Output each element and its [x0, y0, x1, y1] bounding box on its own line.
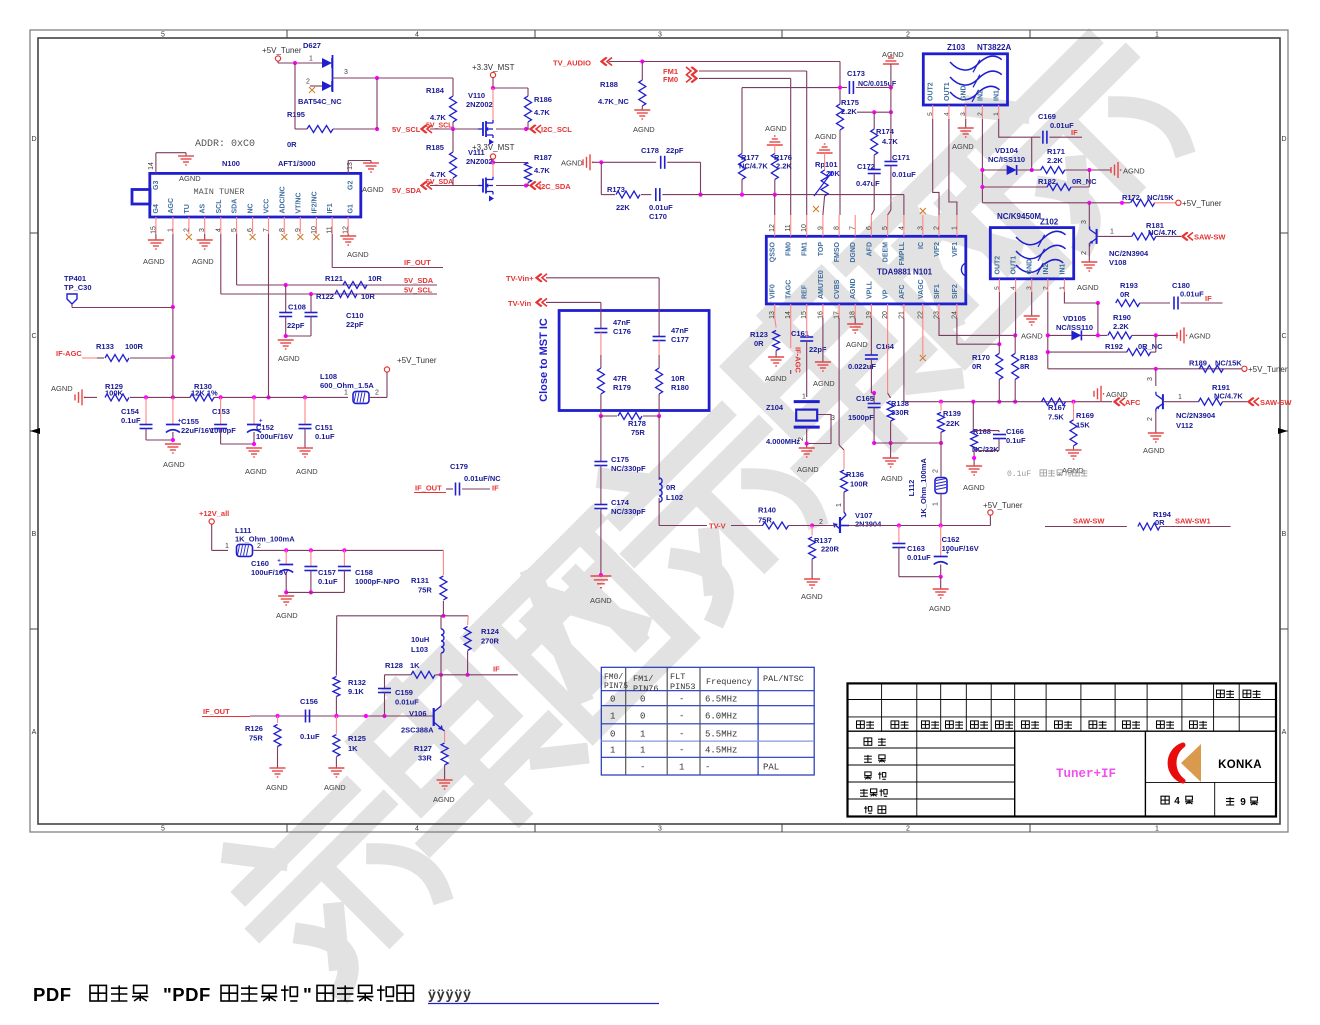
- svg-text:0R: 0R: [287, 140, 297, 149]
- svg-text:AGND: AGND: [813, 379, 835, 388]
- svg-text:R179: R179: [613, 383, 631, 392]
- svg-text:TV-Vin: TV-Vin: [508, 299, 532, 308]
- svg-text:Frequency: Frequency: [706, 677, 752, 687]
- svg-text:+: +: [277, 559, 281, 565]
- svg-text:5V_SDA: 5V_SDA: [392, 186, 422, 195]
- svg-text:R171: R171: [1047, 147, 1065, 156]
- svg-text:FMSO: FMSO: [834, 241, 841, 262]
- svg-text:R122: R122: [316, 292, 334, 301]
- svg-text:TAGC: TAGC: [786, 280, 793, 299]
- svg-text:R182: R182: [1038, 177, 1056, 186]
- svg-text:0: 0: [640, 712, 645, 722]
- svg-text:KONKA: KONKA: [1218, 759, 1262, 771]
- svg-text:C174: C174: [611, 498, 630, 507]
- svg-text:AGND: AGND: [846, 340, 868, 349]
- svg-text:VT/NC: VT/NC: [295, 193, 302, 214]
- svg-text:1: 1: [610, 746, 615, 756]
- svg-text:Close to MST IC: Close to MST IC: [538, 318, 550, 402]
- svg-text:TP_C30: TP_C30: [64, 283, 92, 292]
- svg-text:3: 3: [1147, 377, 1154, 381]
- svg-text:1: 1: [836, 503, 843, 507]
- svg-text:G2: G2: [348, 181, 355, 190]
- svg-text:IF_OUT: IF_OUT: [203, 707, 230, 716]
- svg-text:1: 1: [640, 730, 645, 740]
- svg-text:NC/2N3904: NC/2N3904: [1109, 249, 1149, 258]
- svg-text:IN1: IN1: [994, 90, 1001, 101]
- svg-text:3: 3: [658, 826, 662, 833]
- svg-text:AGND: AGND: [561, 159, 583, 168]
- svg-text:C159: C159: [395, 688, 413, 697]
- svg-text:75R: 75R: [631, 428, 645, 437]
- svg-text:C170: C170: [649, 212, 667, 221]
- svg-text:R192: R192: [1105, 342, 1123, 351]
- svg-text:IC: IC: [918, 242, 925, 249]
- svg-text:FM1: FM1: [802, 242, 809, 256]
- svg-text:8R: 8R: [1020, 362, 1030, 371]
- svg-text:NC/2N3904: NC/2N3904: [1176, 411, 1216, 420]
- svg-text:1: 1: [309, 56, 313, 63]
- svg-text:3: 3: [831, 415, 835, 422]
- svg-text:AGND: AGND: [296, 467, 318, 476]
- svg-text:IN2: IN2: [977, 90, 984, 101]
- svg-text:C163: C163: [907, 544, 925, 553]
- svg-text:FMPLL: FMPLL: [899, 241, 906, 265]
- svg-text:1: 1: [1110, 229, 1114, 236]
- svg-text:C155: C155: [181, 417, 199, 426]
- svg-text:AGND: AGND: [882, 50, 904, 59]
- svg-text:I2C_SCL: I2C_SCL: [541, 125, 572, 134]
- svg-text:SAW-SW: SAW-SW: [1194, 233, 1226, 242]
- svg-text:IF: IF: [493, 665, 500, 674]
- svg-text:C175: C175: [611, 455, 629, 464]
- svg-text:R127: R127: [414, 744, 432, 753]
- svg-text:2: 2: [257, 543, 261, 550]
- svg-text:10uH: 10uH: [411, 635, 429, 644]
- svg-text:": ": [303, 984, 312, 1005]
- svg-text:R195: R195: [287, 110, 305, 119]
- svg-text:1500pF: 1500pF: [848, 413, 874, 422]
- svg-text:IF-AGC: IF-AGC: [794, 347, 803, 373]
- svg-text:-: -: [705, 763, 710, 773]
- svg-text:ADDR: 0xC0: ADDR: 0xC0: [195, 139, 255, 150]
- svg-text:AGND: AGND: [765, 124, 787, 133]
- svg-text:VP: VP: [883, 289, 890, 299]
- svg-text:1: 1: [1178, 394, 1182, 401]
- svg-text:22pF: 22pF: [346, 320, 364, 329]
- svg-text:C108: C108: [288, 303, 306, 312]
- svg-text:AGND: AGND: [347, 250, 369, 259]
- svg-text:L103: L103: [411, 645, 428, 654]
- svg-text:3: 3: [1081, 220, 1088, 224]
- svg-text:IF_OUT: IF_OUT: [415, 484, 442, 493]
- svg-text:10R: 10R: [671, 374, 685, 383]
- svg-text:Z103: Z103: [947, 43, 966, 52]
- svg-text:BAT54C_NC: BAT54C_NC: [298, 97, 342, 106]
- svg-text:SAW-SW: SAW-SW: [1073, 517, 1105, 526]
- svg-text:ÿÿÿÿÿ: ÿÿÿÿÿ: [428, 986, 472, 1002]
- svg-text:2: 2: [375, 390, 379, 397]
- svg-text:V106: V106: [409, 709, 427, 718]
- svg-text:4.7K_NC: 4.7K_NC: [598, 97, 629, 106]
- svg-text:0.01uF: 0.01uF: [1180, 290, 1204, 299]
- svg-text:TDA9881: TDA9881: [877, 268, 912, 277]
- svg-text:NC/330pF: NC/330pF: [611, 464, 646, 473]
- svg-text:VIF0: VIF0: [770, 284, 777, 299]
- svg-text:L102: L102: [666, 493, 683, 502]
- svg-text:9: 9: [1240, 797, 1246, 808]
- svg-text:1K_Ohm_100mA: 1K_Ohm_100mA: [919, 458, 928, 518]
- svg-text:AGND: AGND: [245, 467, 267, 476]
- svg-text:2.2K: 2.2K: [1047, 156, 1063, 165]
- svg-text:VCC: VCC: [264, 199, 271, 214]
- svg-text:R140: R140: [758, 506, 776, 515]
- svg-text:IF2/NC: IF2/NC: [311, 191, 318, 213]
- svg-text:NC/ISS110: NC/ISS110: [988, 155, 1025, 164]
- svg-text:R193: R193: [1120, 281, 1138, 290]
- svg-text:R183: R183: [1020, 353, 1038, 362]
- svg-text:DGND: DGND: [850, 242, 857, 263]
- svg-text:C151: C151: [315, 423, 333, 432]
- svg-text:5V_SCL: 5V_SCL: [392, 125, 421, 134]
- svg-text:0R_NC: 0R_NC: [1072, 177, 1097, 186]
- svg-text:V110: V110: [468, 91, 485, 100]
- svg-text:0R: 0R: [1120, 290, 1130, 299]
- svg-text:R188: R188: [600, 80, 618, 89]
- svg-text:R189: R189: [1189, 359, 1207, 368]
- svg-text:B: B: [32, 531, 37, 538]
- svg-text:220R: 220R: [821, 545, 840, 554]
- svg-text:AGND: AGND: [797, 465, 819, 474]
- svg-text:SAW-SW1: SAW-SW1: [1175, 517, 1211, 526]
- svg-text:22pF: 22pF: [809, 345, 827, 354]
- svg-text:AGND: AGND: [278, 354, 300, 363]
- svg-text:REF: REF: [802, 284, 809, 299]
- svg-text:5V_SDA: 5V_SDA: [404, 276, 434, 285]
- svg-text:-: -: [679, 746, 684, 756]
- svg-text:AGND: AGND: [929, 604, 951, 613]
- svg-text:C173: C173: [847, 69, 865, 78]
- svg-text:33R: 33R: [418, 754, 432, 763]
- svg-text:0R_NC: 0R_NC: [1138, 342, 1163, 351]
- svg-text:AGND: AGND: [1123, 167, 1145, 176]
- svg-text:PIN75: PIN75: [604, 682, 628, 691]
- svg-text:C179: C179: [450, 462, 468, 471]
- svg-text:+5V_Tuner: +5V_Tuner: [262, 46, 302, 55]
- svg-text:22pF: 22pF: [287, 321, 305, 330]
- svg-text:AGND: AGND: [433, 795, 455, 804]
- svg-text:0.47uF: 0.47uF: [856, 179, 880, 188]
- svg-text:AFD: AFD: [866, 242, 873, 256]
- svg-text:0: 0: [610, 695, 615, 705]
- svg-text:4: 4: [1174, 796, 1180, 807]
- svg-text:TP401: TP401: [64, 274, 86, 283]
- svg-text:VIF2: VIF2: [934, 242, 941, 257]
- svg-text:+12V_all: +12V_all: [199, 509, 229, 518]
- svg-text:1K: 1K: [348, 744, 358, 753]
- svg-text:NC/330pF: NC/330pF: [611, 507, 646, 516]
- svg-text:NC/4.7K: NC/4.7K: [739, 162, 768, 171]
- svg-text:4.7K: 4.7K: [430, 170, 446, 179]
- svg-text:AGND: AGND: [590, 596, 612, 605]
- svg-text:OUT2: OUT2: [928, 82, 935, 101]
- svg-text:C158: C158: [355, 568, 373, 577]
- svg-text:PIN76: PIN76: [633, 684, 659, 694]
- svg-text:FM0: FM0: [786, 242, 793, 256]
- svg-text:NC/K9450M: NC/K9450M: [997, 212, 1041, 221]
- svg-text:15K: 15K: [1076, 421, 1090, 430]
- svg-text:75R: 75R: [418, 586, 432, 595]
- svg-text:R131: R131: [411, 576, 429, 585]
- svg-text:CVBS: CVBS: [834, 279, 841, 299]
- svg-text:1: 1: [610, 712, 615, 722]
- svg-text:0.01uF: 0.01uF: [395, 698, 419, 707]
- svg-text:R139: R139: [943, 409, 961, 418]
- svg-text:VD105: VD105: [1063, 314, 1086, 323]
- svg-text:SIF1: SIF1: [934, 284, 941, 299]
- svg-text:NT3822A: NT3822A: [977, 43, 1011, 52]
- svg-text:100R: 100R: [125, 342, 144, 351]
- svg-text:R178: R178: [628, 419, 646, 428]
- svg-text:VD104: VD104: [995, 146, 1019, 155]
- svg-text:NC: NC: [248, 203, 255, 213]
- svg-text:C169: C169: [1038, 112, 1056, 121]
- svg-text:R190: R190: [1113, 313, 1131, 322]
- svg-text:Rp101: Rp101: [815, 160, 838, 169]
- svg-text:1000pF: 1000pF: [210, 426, 236, 435]
- svg-text:FM0/: FM0/: [604, 673, 623, 682]
- svg-text:0.1uF: 0.1uF: [315, 432, 335, 441]
- svg-text:IN2: IN2: [1043, 264, 1050, 275]
- svg-text:5: 5: [161, 826, 165, 833]
- svg-text:+5V_Tuner: +5V_Tuner: [983, 501, 1023, 510]
- svg-text:V108: V108: [1109, 258, 1127, 267]
- svg-text:DEEM: DEEM: [883, 242, 890, 262]
- svg-text:AGND: AGND: [163, 460, 185, 469]
- svg-text:7.5K: 7.5K: [1048, 413, 1064, 422]
- svg-text:I2C_SDA: I2C_SDA: [539, 182, 571, 191]
- svg-text:0.1uF: 0.1uF: [300, 732, 320, 741]
- svg-text:QSSO: QSSO: [770, 241, 777, 262]
- svg-text:R173: R173: [607, 185, 625, 194]
- svg-text:IN1: IN1: [1059, 264, 1066, 275]
- svg-text:AGND: AGND: [850, 278, 857, 299]
- svg-text:75R: 75R: [249, 734, 263, 743]
- svg-text:AGC: AGC: [168, 198, 175, 214]
- svg-text:D: D: [31, 136, 36, 143]
- svg-text:R174: R174: [876, 127, 895, 136]
- svg-text:PAL/NTSC: PAL/NTSC: [763, 674, 804, 684]
- svg-text:D: D: [1281, 136, 1286, 143]
- svg-text:AGND: AGND: [324, 783, 346, 792]
- svg-text:0R: 0R: [754, 339, 764, 348]
- svg-text:AGND: AGND: [1189, 332, 1211, 341]
- svg-text:2: 2: [933, 469, 940, 473]
- svg-text:-: -: [679, 695, 684, 705]
- svg-text:1: 1: [679, 763, 684, 773]
- svg-text:A: A: [32, 729, 37, 736]
- svg-text:100R: 100R: [850, 480, 869, 489]
- svg-text:-: -: [679, 712, 684, 722]
- svg-text:NC/15K: NC/15K: [1147, 193, 1174, 202]
- svg-text:9.1K: 9.1K: [348, 687, 364, 696]
- svg-text:C171: C171: [892, 153, 910, 162]
- svg-text:FLT: FLT: [670, 672, 685, 682]
- svg-text:TV_AUDIO: TV_AUDIO: [553, 59, 591, 68]
- svg-text:2SC388A: 2SC388A: [401, 726, 434, 735]
- svg-text:C110: C110: [346, 311, 364, 320]
- svg-text:C: C: [31, 333, 36, 340]
- svg-text:5.5MHz: 5.5MHz: [705, 730, 737, 740]
- svg-text:AGND: AGND: [765, 374, 787, 383]
- svg-text:AGND: AGND: [1077, 283, 1099, 292]
- svg-text:NC/15K: NC/15K: [1215, 359, 1242, 368]
- svg-text:PDF: PDF: [33, 984, 72, 1005]
- svg-text:+5V_Tuner: +5V_Tuner: [1182, 199, 1222, 208]
- svg-text:1: 1: [802, 394, 806, 401]
- svg-text:4.7K: 4.7K: [882, 137, 898, 146]
- svg-text:2NZ002: 2NZ002: [466, 157, 493, 166]
- svg-text:AGND: AGND: [1021, 332, 1043, 341]
- svg-text:PIN53: PIN53: [670, 682, 696, 692]
- svg-text:22pF: 22pF: [666, 146, 684, 155]
- svg-text:AGND: AGND: [881, 474, 903, 483]
- svg-text:AGND: AGND: [276, 611, 298, 620]
- svg-text:3: 3: [344, 69, 348, 76]
- svg-text:L112: L112: [907, 480, 916, 497]
- svg-text:2: 2: [906, 32, 910, 39]
- svg-text:G4: G4: [153, 204, 160, 213]
- svg-text:R172: R172: [1122, 193, 1140, 202]
- svg-text:+5V_Tuner: +5V_Tuner: [397, 356, 437, 365]
- svg-text:270R: 270R: [481, 637, 500, 646]
- svg-text:AS: AS: [200, 203, 207, 213]
- svg-text:4.7K: 4.7K: [534, 166, 550, 175]
- svg-text:N101: N101: [913, 268, 933, 277]
- svg-text:0.1uF: 0.1uF: [318, 577, 338, 586]
- svg-text:R186: R186: [534, 95, 552, 104]
- svg-text:+3.3V_MST: +3.3V_MST: [472, 63, 515, 72]
- svg-text:47R: 47R: [613, 374, 627, 383]
- svg-text:R124: R124: [481, 627, 500, 636]
- svg-text:IF-AGC: IF-AGC: [56, 349, 82, 358]
- svg-text:A: A: [1282, 729, 1287, 736]
- svg-text:AGND: AGND: [633, 125, 655, 134]
- svg-text:47nF: 47nF: [613, 318, 631, 327]
- svg-text:AFT1/3000: AFT1/3000: [278, 159, 316, 168]
- svg-text:Tuner+IF: Tuner+IF: [1056, 767, 1116, 781]
- svg-text:C154: C154: [121, 407, 140, 416]
- svg-text:0: 0: [640, 695, 645, 705]
- svg-text:14: 14: [148, 162, 155, 170]
- svg-text:R175: R175: [841, 98, 859, 107]
- svg-text:R132: R132: [348, 678, 366, 687]
- svg-text:NC/4.7K: NC/4.7K: [1148, 228, 1177, 237]
- svg-text:AGND: AGND: [1143, 446, 1165, 455]
- svg-text:2: 2: [1147, 417, 1154, 421]
- svg-text:1: 1: [1155, 32, 1159, 39]
- svg-text:SCL: SCL: [216, 199, 223, 214]
- svg-text:0R: 0R: [666, 483, 676, 492]
- svg-text:C156: C156: [300, 697, 318, 706]
- svg-text:GND: GND: [1027, 259, 1034, 275]
- svg-text:-: -: [679, 730, 684, 740]
- svg-text:1: 1: [640, 746, 645, 756]
- svg-text:2.2K: 2.2K: [1113, 322, 1129, 331]
- svg-text:FM0: FM0: [663, 75, 678, 84]
- svg-text:0.01uF: 0.01uF: [649, 203, 673, 212]
- svg-text:0.1uF: 0.1uF: [1006, 436, 1026, 445]
- svg-text:C177: C177: [671, 335, 689, 344]
- svg-text:R125: R125: [348, 734, 366, 743]
- svg-text:ADC/NC: ADC/NC: [279, 186, 286, 213]
- svg-text:R133: R133: [96, 342, 114, 351]
- svg-text:IF: IF: [1071, 128, 1078, 137]
- svg-text:NC/4.7K: NC/4.7K: [1214, 391, 1243, 400]
- svg-text:5: 5: [161, 32, 165, 39]
- svg-text:AGND: AGND: [952, 142, 974, 151]
- svg-text:OUT1: OUT1: [944, 82, 951, 101]
- svg-text:0.022uF: 0.022uF: [848, 362, 876, 371]
- svg-text:IF1: IF1: [327, 203, 334, 213]
- svg-text:AFC: AFC: [899, 285, 906, 299]
- svg-text:R121: R121: [325, 274, 343, 283]
- svg-text:0R: 0R: [972, 362, 982, 371]
- svg-text:R184: R184: [426, 86, 445, 95]
- svg-text:4.7K: 4.7K: [534, 108, 550, 117]
- svg-text:C157: C157: [318, 568, 336, 577]
- svg-text:VIF1: VIF1: [952, 242, 959, 257]
- svg-text:+: +: [178, 419, 182, 425]
- svg-text:C165: C165: [856, 394, 874, 403]
- svg-text:MAIN TUNER: MAIN TUNER: [193, 187, 244, 197]
- svg-text:AMUTE0: AMUTE0: [818, 270, 825, 299]
- svg-text:22uF/16V: 22uF/16V: [181, 426, 214, 435]
- svg-text:TV-V: TV-V: [709, 522, 726, 531]
- svg-text:+5V_Tuner: +5V_Tuner: [1248, 365, 1288, 374]
- svg-text:2: 2: [906, 826, 910, 833]
- svg-text:"PDF: "PDF: [163, 984, 211, 1005]
- svg-text:R169: R169: [1076, 411, 1094, 420]
- svg-text:FM1/: FM1/: [633, 674, 653, 684]
- svg-text:Z104: Z104: [766, 403, 784, 412]
- svg-text:4.000MHz: 4.000MHz: [766, 437, 800, 446]
- svg-text:PAL: PAL: [763, 763, 779, 773]
- svg-text:+: +: [259, 419, 263, 425]
- svg-text:5V_SCL: 5V_SCL: [404, 286, 433, 295]
- svg-text:TU: TU: [184, 204, 191, 213]
- svg-text:1K: 1K: [410, 661, 420, 670]
- svg-text:C178: C178: [641, 146, 659, 155]
- svg-text:AGND: AGND: [192, 257, 214, 266]
- svg-text:C160: C160: [251, 559, 269, 568]
- svg-text:10R: 10R: [361, 292, 375, 301]
- svg-text:R170: R170: [972, 353, 990, 362]
- svg-text:AFC: AFC: [1125, 398, 1141, 407]
- svg-text:3: 3: [658, 32, 662, 39]
- svg-text:AGND: AGND: [801, 592, 823, 601]
- svg-text:G3: G3: [153, 181, 160, 190]
- svg-text:VPLL: VPLL: [866, 280, 873, 299]
- svg-text:22K: 22K: [946, 419, 960, 428]
- svg-text:AGND: AGND: [143, 257, 165, 266]
- svg-text:1: 1: [1155, 826, 1159, 833]
- svg-text:R123: R123: [750, 330, 768, 339]
- svg-text:AGND: AGND: [51, 384, 73, 393]
- svg-text:V112: V112: [1176, 421, 1193, 430]
- svg-text:R187: R187: [534, 153, 552, 162]
- svg-text:4.5MHz: 4.5MHz: [705, 746, 737, 756]
- svg-text:0.01uF: 0.01uF: [907, 553, 931, 562]
